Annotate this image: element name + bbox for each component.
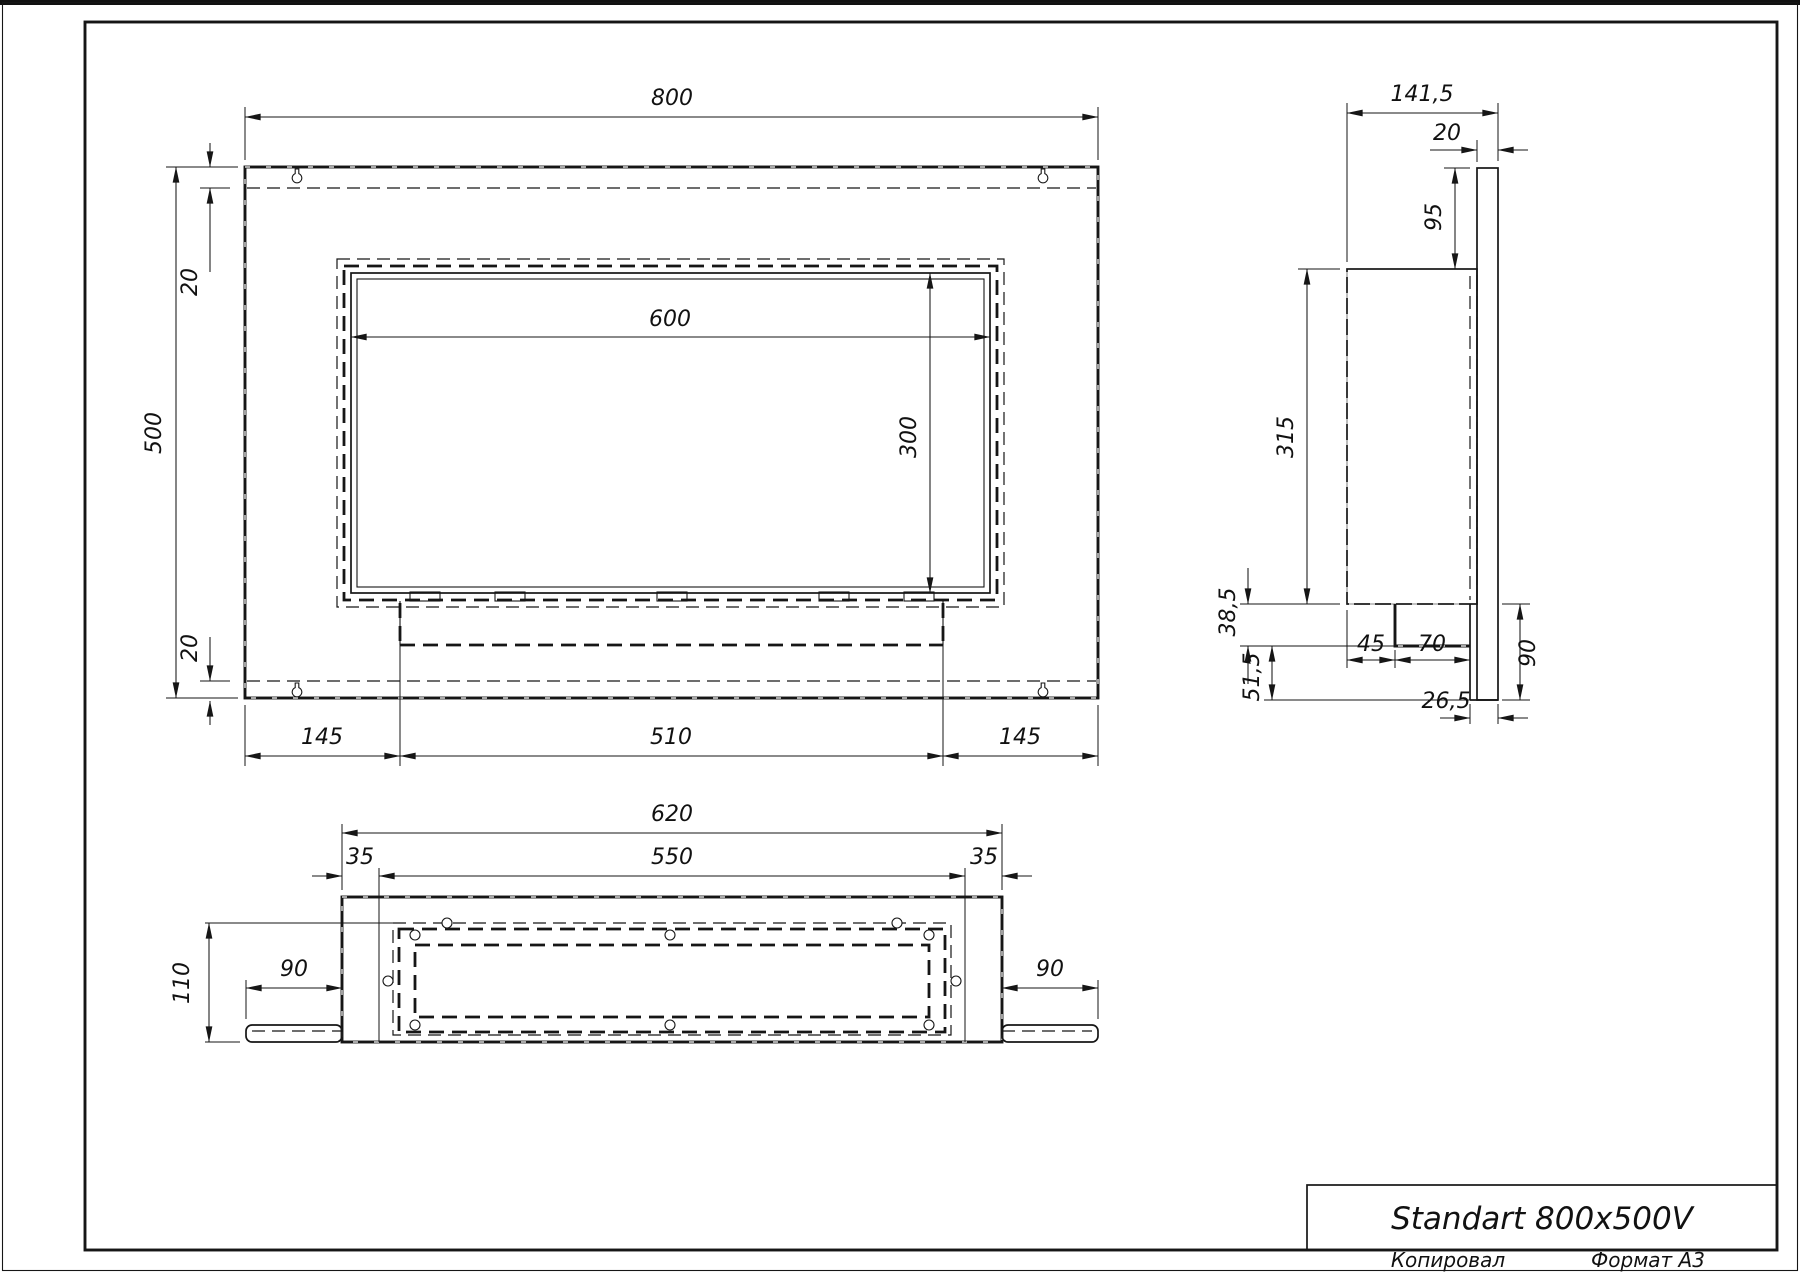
dim-text-620: 620 [651,802,693,827]
dim-front-bottom-inset: 20 [178,634,230,725]
front-panel-outline-dash-overlay [245,167,1098,698]
dim-opening-height: 300 [897,273,930,593]
dim-text-35-left: 35 [346,845,374,870]
dim-bottom-margins: 145 510 145 [245,645,1098,766]
dim-text-95: 95 [1422,203,1447,231]
dim-bottom-left-wing: 90 [246,957,342,1019]
screw-hole [442,918,452,928]
drawing-title: Standart 800x500V [1391,1201,1696,1237]
footer-format-label: Формат A3 [1591,1248,1705,1272]
outer-border [3,3,1798,1271]
screw-hole [924,1020,934,1030]
dim-text-90-side: 90 [1516,639,1541,667]
dim-side-body-height: 315 [1240,269,1340,604]
keyhole-icon [1038,683,1048,697]
keyhole-slot-icons [292,169,1048,697]
dim-text-500: 500 [142,412,167,454]
dim-side-total-depth: 141,5 [1347,82,1498,262]
side-panel-outline [1477,168,1498,700]
dim-text-141-5: 141,5 [1391,82,1454,107]
dim-text-20-bottom: 20 [178,634,203,662]
dim-text-600: 600 [649,307,691,332]
dim-text-20-side: 20 [1433,121,1461,146]
dim-side-panel-thickness: 20 [1430,121,1528,162]
dim-side-step-lower: 51,5 [1240,646,1272,701]
dim-front-top-inset: 20 [178,143,230,296]
title-block: Standart 800x500V Копировал Формат A3 [1307,1185,1777,1272]
dim-text-35-right: 35 [970,845,998,870]
page-frame [0,0,1800,1271]
dim-text-26-5: 26,5 [1422,689,1471,714]
keyhole-icon [292,683,302,697]
dim-text-550: 550 [651,845,693,870]
dim-text-38-5: 38,5 [1216,588,1241,637]
drawing-canvas: 800 500 20 20 600 [0,0,1800,1273]
screw-hole [410,1020,420,1030]
screw-hole [924,930,934,940]
dim-text-800: 800 [651,86,693,111]
dim-text-145-right: 145 [999,725,1041,750]
screw-hole [383,976,393,986]
dim-text-45: 45 [1357,632,1385,657]
side-view: 141,5 20 95 315 38,5 [1216,82,1541,724]
dim-side-back-gap: 26,5 [1422,689,1528,724]
side-box-outline [1347,269,1477,604]
dim-text-300: 300 [897,416,922,458]
footer-copied-label: Копировал [1391,1248,1505,1272]
dim-side-bracket-height: 90 [1502,604,1541,700]
dim-text-51-5: 51,5 [1240,653,1265,702]
screw-hole [892,918,902,928]
screw-hole [665,930,675,940]
dim-text-20-top: 20 [178,268,203,296]
inner-border [85,22,1777,1250]
dim-text-90-right: 90 [1036,957,1064,982]
dim-front-width: 800 [245,86,1098,160]
screw-hole [410,930,420,940]
keyhole-icon [292,169,302,183]
front-view: 800 500 20 20 600 [142,86,1098,766]
dim-bottom-right-wing: 90 [1002,957,1098,1019]
drawing-sheet: 800 500 20 20 600 [0,0,1800,1273]
dim-side-tray: 45 70 [1347,610,1470,668]
bottom-screw-holes [383,918,961,1030]
dim-front-height: 500 [142,167,238,698]
dim-text-90-left: 90 [280,957,308,982]
dim-text-315: 315 [1274,416,1299,458]
screw-hole [951,976,961,986]
dim-text-510: 510 [650,725,692,750]
front-panel-outline [245,167,1098,698]
left-wing [246,1025,342,1042]
dim-side-top-offset: 95 [1422,168,1470,269]
dim-text-70: 70 [1418,632,1446,657]
bottom-view: 620 35 550 35 110 90 [170,802,1098,1042]
dim-text-145-left: 145 [301,725,343,750]
keyhole-icon [1038,169,1048,183]
bottom-tray-inner-hidden [415,945,929,1017]
dim-bottom-insets: 35 550 35 [312,845,1032,1042]
dim-text-110: 110 [170,962,195,1004]
dim-opening-width: 600 [351,307,990,337]
screw-hole [665,1020,675,1030]
right-wing [1002,1025,1098,1042]
